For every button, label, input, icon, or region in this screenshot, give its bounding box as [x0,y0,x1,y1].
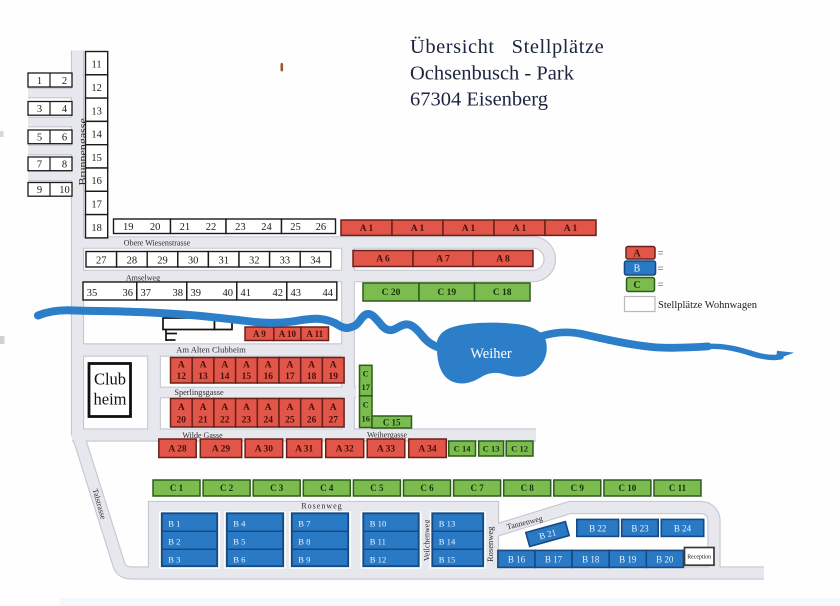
svg-text:27: 27 [96,256,107,267]
svg-text:30: 30 [188,256,199,267]
svg-text:B 6: B 6 [233,554,246,564]
svg-text:C 7: C 7 [470,483,484,493]
svg-text:13: 13 [198,372,208,382]
svg-text:12: 12 [91,83,102,94]
svg-text:A: A [221,403,228,413]
svg-text:Weihergasse: Weihergasse [367,431,408,440]
svg-text:B 20: B 20 [656,555,674,565]
svg-text:A 11: A 11 [306,329,323,339]
svg-text:1: 1 [37,76,42,87]
svg-text:C: C [633,280,640,291]
svg-text:A: A [330,361,337,371]
svg-text:14: 14 [91,130,102,141]
svg-text:19: 19 [328,372,338,382]
svg-text:B 5: B 5 [233,537,245,547]
svg-text:16: 16 [263,372,273,382]
svg-text:26: 26 [307,416,317,426]
svg-text:Weiher: Weiher [470,346,512,362]
svg-text:A 33: A 33 [377,445,395,455]
svg-text:Am Alten Clubheim: Am Alten Clubheim [176,345,246,355]
svg-text:38: 38 [173,288,184,299]
svg-text:44: 44 [323,288,334,299]
svg-text:B: B [634,264,641,275]
svg-text:17: 17 [285,372,295,382]
svg-text:C 3: C 3 [270,483,284,493]
svg-text:C 6: C 6 [420,483,434,493]
svg-text:B 18: B 18 [582,555,600,565]
svg-text:C 20: C 20 [382,288,401,298]
svg-text:13: 13 [91,106,102,117]
svg-text:A 29: A 29 [212,445,230,455]
svg-text:2: 2 [62,76,67,87]
svg-text:18: 18 [307,372,317,382]
svg-text:B 12: B 12 [370,554,386,564]
svg-text:A 1: A 1 [411,224,425,234]
svg-text:18: 18 [91,223,102,234]
svg-text:A: A [633,249,641,260]
svg-text:Sperlingsgasse: Sperlingsgasse [174,388,224,397]
svg-text:35: 35 [87,288,98,299]
svg-text:A: A [200,361,207,371]
svg-text:39: 39 [191,288,202,299]
svg-text:17: 17 [91,200,102,211]
svg-text:22: 22 [206,222,217,233]
svg-text:A 1: A 1 [360,224,374,234]
svg-text:B 14: B 14 [439,537,456,547]
svg-text:Rosenweg: Rosenweg [485,526,495,562]
svg-text:A: A [178,403,185,413]
svg-text:C 19: C 19 [437,288,456,298]
svg-text:11: 11 [92,60,102,71]
svg-text:10: 10 [59,185,70,196]
svg-text:20: 20 [150,222,161,233]
svg-text:Stellplätze Wohnwagen: Stellplätze Wohnwagen [658,300,758,311]
svg-text:23: 23 [242,416,252,426]
svg-text:B 7: B 7 [298,519,311,529]
svg-text:B 16: B 16 [508,555,526,565]
svg-text:25: 25 [285,416,295,426]
svg-text:B 23: B 23 [631,524,649,534]
svg-text:6: 6 [62,133,67,144]
svg-text:A 6: A 6 [376,255,390,265]
svg-text:C 15: C 15 [383,417,401,427]
svg-text:A 7: A 7 [436,255,450,265]
svg-text:C: C [363,400,369,410]
svg-text:A: A [243,403,250,413]
svg-text:B 4: B 4 [233,519,246,529]
svg-text:A: A [221,361,228,371]
svg-text:42: 42 [273,288,284,299]
svg-text:A 34: A 34 [418,445,436,455]
svg-text:9: 9 [37,185,42,196]
svg-text:22: 22 [220,416,230,426]
svg-text:20: 20 [177,416,187,426]
svg-text:40: 40 [223,288,234,299]
svg-text:7: 7 [37,160,42,171]
svg-text:A: A [286,361,293,371]
svg-text:A 30: A 30 [255,445,273,455]
svg-text:B 22: B 22 [589,524,606,534]
svg-text:19: 19 [123,222,134,233]
svg-text:33: 33 [280,256,291,267]
svg-text:17: 17 [361,382,370,392]
svg-text:C 8: C 8 [521,483,535,493]
svg-text:29: 29 [157,256,168,267]
svg-text:28: 28 [127,256,138,267]
svg-text:21: 21 [198,416,208,426]
svg-text:A 10: A 10 [279,329,297,339]
svg-text:8: 8 [62,160,67,171]
svg-text:32: 32 [249,256,260,267]
svg-text:C 2: C 2 [220,483,234,493]
svg-text:C: C [363,369,369,379]
svg-text:A: A [265,403,272,413]
svg-text:31: 31 [218,256,229,267]
svg-text:A: A [265,361,272,371]
svg-text:A 32: A 32 [336,445,354,455]
svg-text:34: 34 [310,256,321,267]
svg-text:37: 37 [141,288,152,299]
svg-text:A: A [308,403,315,413]
svg-text:C 12: C 12 [511,444,528,454]
svg-text:C 9: C 9 [571,483,585,493]
svg-text:B 9: B 9 [298,554,310,564]
svg-text:5: 5 [37,133,42,144]
svg-text:B 8: B 8 [298,537,310,547]
svg-text:Reception: Reception [687,555,711,561]
svg-text:Rosenweg: Rosenweg [301,502,342,511]
svg-text:12: 12 [177,372,187,382]
svg-text:A 28: A 28 [168,445,186,455]
svg-text:A 1: A 1 [462,224,476,234]
svg-text:B 11: B 11 [370,537,386,547]
svg-text:36: 36 [123,288,134,299]
svg-text:A 9: A 9 [253,329,266,339]
svg-text:A: A [200,403,207,413]
svg-text:C 18: C 18 [493,288,512,298]
svg-text:16: 16 [91,176,102,187]
svg-text:C 5: C 5 [370,483,384,493]
svg-text:B 17: B 17 [545,555,563,565]
svg-text:24: 24 [261,222,272,233]
svg-text:A 1: A 1 [513,224,527,234]
svg-text:B 15: B 15 [439,554,455,564]
svg-text:B 19: B 19 [619,555,637,565]
svg-text:4: 4 [62,104,68,115]
svg-text:A: A [286,403,293,413]
svg-text:B 10: B 10 [370,519,386,529]
svg-text:A: A [243,361,250,371]
svg-text:C 13: C 13 [483,444,500,454]
svg-text:heim: heim [94,390,127,409]
svg-text:25: 25 [290,222,301,233]
svg-text:Ochsenbusch - Park: Ochsenbusch - Park [410,63,575,85]
svg-text:B 13: B 13 [439,519,455,529]
svg-text:B 3: B 3 [168,554,180,564]
svg-text:41: 41 [241,288,252,299]
svg-text:A: A [178,361,185,371]
svg-text:A 8: A 8 [496,255,510,265]
svg-text:27: 27 [328,416,338,426]
svg-text:43: 43 [291,288,302,299]
svg-text:14: 14 [220,372,230,382]
svg-text:A 31: A 31 [295,445,313,455]
svg-text:26: 26 [316,222,327,233]
svg-text:Amselweg: Amselweg [126,274,160,283]
svg-text:A: A [330,403,337,413]
svg-text:A: A [308,361,315,371]
svg-text:C 4: C 4 [320,483,334,493]
svg-text:A 1: A 1 [564,224,578,234]
svg-text:23: 23 [235,222,246,233]
svg-text:3: 3 [37,104,42,115]
svg-text:C 14: C 14 [454,444,472,454]
svg-text:Club: Club [94,370,126,389]
svg-text:C 11: C 11 [669,483,687,493]
svg-text:15: 15 [91,153,102,164]
svg-text:24: 24 [263,416,273,426]
svg-text:Obere Wiesenstrasse: Obere Wiesenstrasse [124,238,191,247]
svg-text:B 2: B 2 [168,537,180,547]
svg-text:67304 Eisenberg: 67304 Eisenberg [410,89,548,111]
svg-text:15: 15 [242,372,252,382]
svg-text:Übersicht Stellplätze: Übersicht Stellplätze [410,35,604,58]
svg-text:C 10: C 10 [619,483,637,493]
svg-text:C 1: C 1 [170,483,184,493]
svg-text:B 24: B 24 [674,524,692,534]
svg-text:21: 21 [180,222,191,233]
svg-text:B 1: B 1 [168,519,180,529]
svg-text:16: 16 [361,414,370,424]
